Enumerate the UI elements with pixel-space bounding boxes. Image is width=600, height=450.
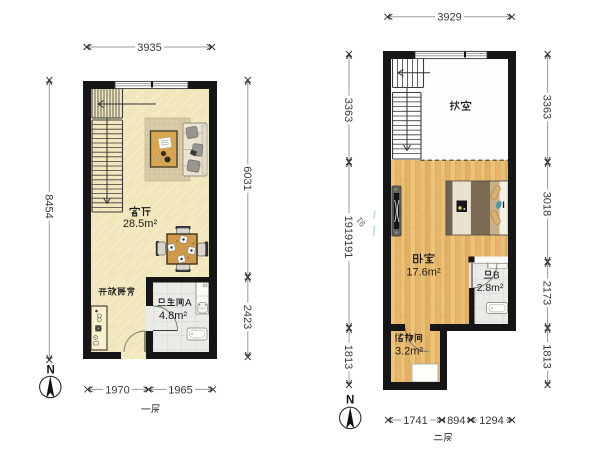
svg-text:N: N [346,394,354,406]
svg-text:1813: 1813 [342,345,354,369]
svg-text:17.6m²: 17.6m² [406,267,441,279]
svg-text:1970: 1970 [105,384,129,396]
svg-text:3363: 3363 [541,95,553,119]
svg-text:3929: 3929 [437,12,461,24]
svg-text:28.5m²: 28.5m² [123,218,158,230]
svg-text:8454: 8454 [42,194,54,218]
svg-text:6031: 6031 [241,166,253,190]
svg-text:1813: 1813 [541,344,553,368]
svg-text:1965: 1965 [168,384,192,396]
svg-text:1919191: 1919191 [342,216,354,259]
svg-text:1741: 1741 [403,415,427,427]
svg-text:3.2m²: 3.2m² [395,346,423,358]
svg-text:A: A [185,298,192,309]
svg-text:2173: 2173 [541,281,553,305]
svg-text:3018: 3018 [541,192,553,216]
svg-text:894: 894 [447,415,465,427]
svg-text:N: N [47,365,55,377]
svg-text:2423: 2423 [241,305,253,329]
svg-text:4.8m²: 4.8m² [159,310,187,322]
svg-text:2.8m²: 2.8m² [477,282,504,294]
svg-text:B: B [493,271,500,282]
svg-text:3935: 3935 [137,42,161,54]
svg-text:3363: 3363 [342,98,354,122]
svg-text:1294: 1294 [479,415,503,427]
